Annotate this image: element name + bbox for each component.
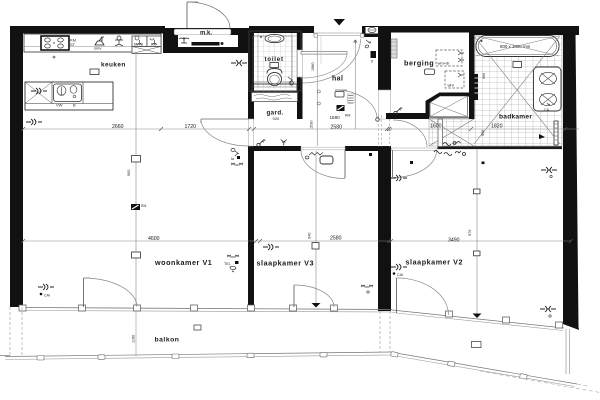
svg-text:CAI: CAI <box>397 273 403 277</box>
svg-text:2660: 2660 <box>112 124 124 130</box>
svg-text:MAG: MAG <box>134 42 143 47</box>
svg-text:920: 920 <box>273 116 280 121</box>
svg-text:900: 900 <box>127 170 131 176</box>
svg-text:975: 975 <box>468 230 472 236</box>
svg-text:VW: VW <box>56 103 63 108</box>
svg-text:toilet: toilet <box>265 56 284 63</box>
svg-text:whr: whr <box>448 83 455 88</box>
svg-text:CA: CA <box>544 108 550 112</box>
svg-text:berging: berging <box>404 59 434 68</box>
svg-text:wm+dr: wm+dr <box>438 61 451 66</box>
svg-text:slaapkamer V2: slaapkamer V2 <box>406 258 464 267</box>
svg-text:CAI: CAI <box>44 294 50 298</box>
svg-text:1590: 1590 <box>330 115 341 120</box>
svg-text:KK: KK <box>151 42 157 47</box>
svg-text:B: B <box>73 103 76 108</box>
svg-text:4600: 4600 <box>148 236 160 242</box>
svg-text:ST: ST <box>70 42 76 47</box>
svg-text:1980: 1980 <box>311 63 315 71</box>
svg-text:1820: 1820 <box>491 124 503 130</box>
svg-text:hal: hal <box>332 76 343 83</box>
svg-text:1720: 1720 <box>185 124 197 130</box>
svg-text:2580: 2580 <box>330 236 342 242</box>
svg-text:ta: ta <box>231 157 234 161</box>
svg-text:balkon: balkon <box>155 337 180 344</box>
svg-text:1600: 1600 <box>430 124 442 130</box>
svg-text:940: 940 <box>308 233 312 239</box>
svg-text:900: 900 <box>481 130 485 136</box>
svg-text:badkamer: badkamer <box>499 114 532 121</box>
svg-text:1530: 1530 <box>310 121 314 129</box>
svg-text:RM: RM <box>141 204 146 208</box>
svg-text:TEL: TEL <box>224 262 231 266</box>
svg-text:2580: 2580 <box>331 125 343 131</box>
svg-text:slaapkamer V3: slaapkamer V3 <box>257 259 315 268</box>
svg-text:1f: 1f <box>371 60 374 64</box>
svg-text:1160: 1160 <box>132 335 136 343</box>
svg-text:3490: 3490 <box>448 238 460 244</box>
svg-text:woonkamer V1: woonkamer V1 <box>154 258 212 267</box>
svg-text:RM: RM <box>345 114 350 118</box>
svg-text:keuken: keuken <box>101 62 126 69</box>
svg-text:900: 900 <box>482 73 486 79</box>
svg-text:smv: smv <box>94 46 101 51</box>
svg-text:m.k.: m.k. <box>200 31 212 37</box>
